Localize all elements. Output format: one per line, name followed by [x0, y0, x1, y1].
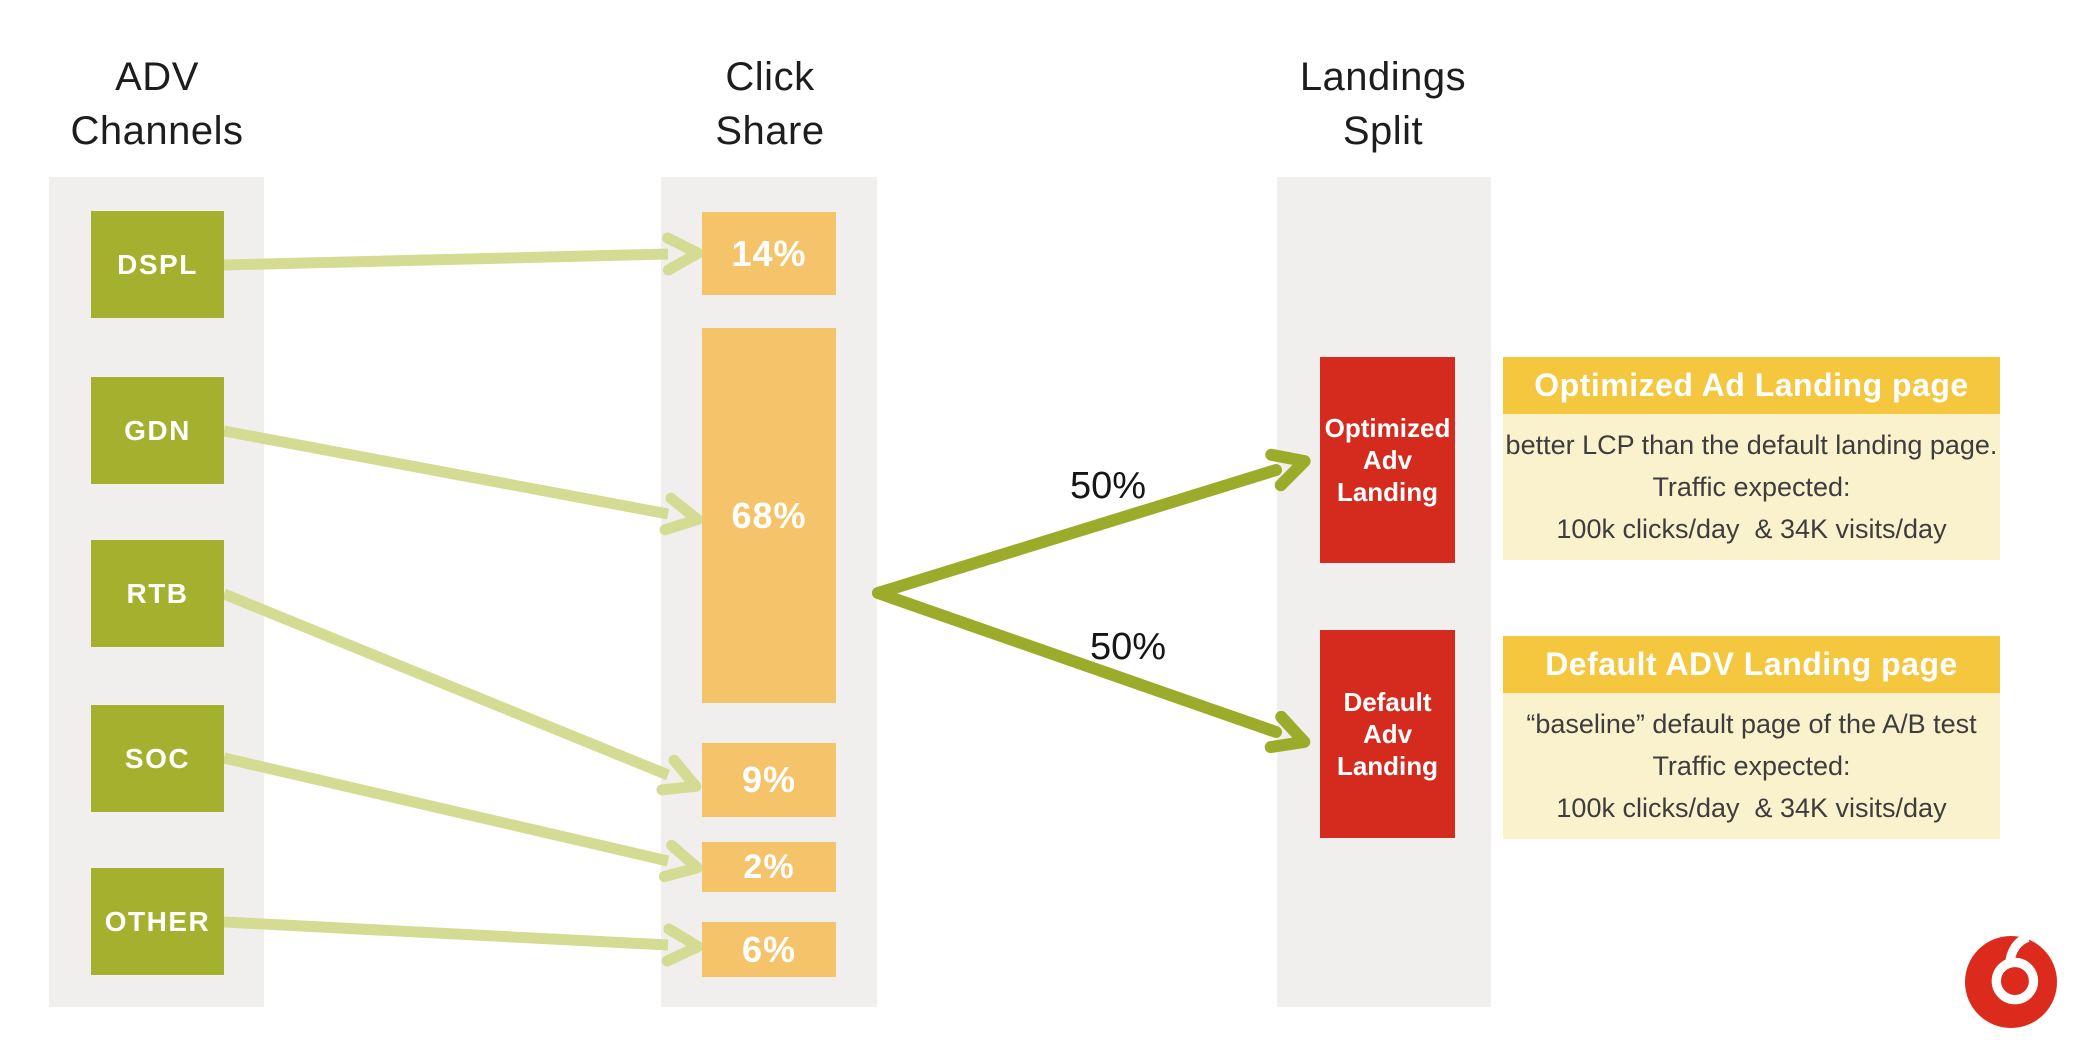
channel-label: RTB	[126, 578, 188, 610]
vodafone-logo	[1964, 935, 2058, 1029]
share-box-9: 9%	[702, 743, 836, 817]
optimized-landing-callout-body: better LCP than the default landing page…	[1503, 414, 2000, 560]
landing-box-default: Default Adv Landing	[1320, 630, 1455, 838]
share-label: 14%	[731, 233, 806, 275]
share-label: 2%	[743, 848, 794, 887]
channel-label: DSPL	[117, 249, 198, 281]
channel-box-gdn: GDN	[91, 377, 224, 484]
channel-box-dspl: DSPL	[91, 211, 224, 318]
channel-label: OTHER	[105, 906, 211, 938]
arrow-soc-to-share-2	[224, 758, 668, 861]
arrow-rtb-to-share-9	[224, 594, 668, 775]
default-landing-callout-title: Default ADV Landing page	[1503, 636, 2000, 693]
share-box-2: 2%	[702, 842, 836, 892]
arrow-gdn-to-share-68	[224, 431, 668, 514]
adv-channels-header: ADV Channels	[7, 50, 307, 158]
channel-box-other: OTHER	[91, 868, 224, 975]
channel-label: GDN	[124, 415, 191, 447]
optimized-landing-callout-title: Optimized Ad Landing page	[1503, 357, 2000, 414]
split-percent-upper: 50%	[1023, 462, 1193, 510]
share-box-68: 68%	[702, 328, 836, 703]
split-percent-lower: 50%	[1043, 623, 1213, 671]
landing-box-optimized: Optimized Adv Landing	[1320, 357, 1455, 563]
arrow-other-to-share-6	[224, 922, 668, 945]
share-label: 68%	[731, 495, 806, 537]
share-label: 9%	[742, 759, 796, 801]
share-box-14: 14%	[702, 212, 836, 295]
channel-label: SOC	[125, 743, 190, 775]
landing-label: Optimized Adv Landing	[1325, 412, 1451, 508]
share-box-6: 6%	[702, 922, 836, 977]
channel-box-rtb: RTB	[91, 540, 224, 647]
arrow-dspl-to-share-14	[224, 254, 668, 265]
share-label: 6%	[742, 929, 796, 971]
default-landing-callout-body: “baseline” default page of the A/B test …	[1503, 693, 2000, 839]
ab-test-flow-diagram: ADV Channels Click Share Landings Split …	[0, 0, 2090, 1040]
landing-label: Default Adv Landing	[1337, 686, 1438, 782]
click-share-header: Click Share	[620, 50, 920, 158]
channel-box-soc: SOC	[91, 705, 224, 812]
landings-split-header: Landings Split	[1233, 50, 1533, 158]
